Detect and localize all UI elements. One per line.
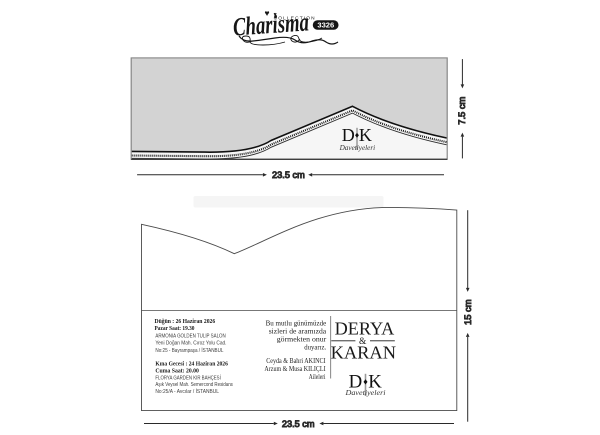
svg-text:K: K (359, 125, 372, 145)
svg-text:15 cm: 15 cm (462, 299, 473, 325)
svg-text:Aileleri: Aileleri (309, 372, 326, 381)
svg-text:23.5 cm: 23.5 cm (282, 419, 315, 429)
svg-text:DERYA: DERYA (335, 319, 395, 339)
svg-text:Yeni Doğan Mah. Cıroz Yolu Cad: Yeni Doğan Mah. Cıroz Yolu Cad. (155, 340, 226, 346)
svg-text:No:25/A - Avcılar / İSTANBUL: No:25/A - Avcılar / İSTANBUL (155, 388, 219, 395)
svg-text:23.5 cm: 23.5 cm (272, 170, 305, 180)
svg-text:♥: ♥ (274, 12, 277, 18)
svg-text:Pazar Saat: 19.30: Pazar Saat: 19.30 (155, 326, 195, 332)
svg-text:Aşık Veysel Mah. Semercond Res: Aşık Veysel Mah. Semercond Residans (155, 382, 233, 388)
svg-text:7.5 cm: 7.5 cm (456, 96, 467, 124)
svg-text:Davetiyeleri: Davetiyeleri (339, 143, 376, 152)
svg-text:Kına Gecesi : 24 Haziran 2026: Kına Gecesi : 24 Haziran 2026 (155, 362, 228, 368)
svg-text:KARAN: KARAN (331, 342, 396, 362)
svg-text:No:25 - Bayrampaşa / İSTANBUL: No:25 - Bayrampaşa / İSTANBUL (155, 347, 223, 354)
svg-text:ARMONIA GOLDEN TULIP SALON: ARMONIA GOLDEN TULIP SALON (155, 334, 226, 340)
svg-text:Düğün : 26 Haziran 2026: Düğün : 26 Haziran 2026 (155, 318, 216, 325)
svg-text:Davetiyeleri: Davetiyeleri (344, 388, 385, 397)
svg-text:duyarız.: duyarız. (304, 342, 326, 351)
svg-text:D: D (342, 125, 355, 145)
svg-text:♥: ♥ (265, 8, 270, 18)
svg-text:FLORYA GARDEN KIR BAHÇESİ: FLORYA GARDEN KIR BAHÇESİ (155, 374, 220, 381)
svg-text:Cuma Saat: 20.00: Cuma Saat: 20.00 (155, 368, 199, 374)
svg-text:COLLECTION: COLLECTION (274, 15, 316, 21)
svg-text:3326: 3326 (317, 21, 334, 30)
